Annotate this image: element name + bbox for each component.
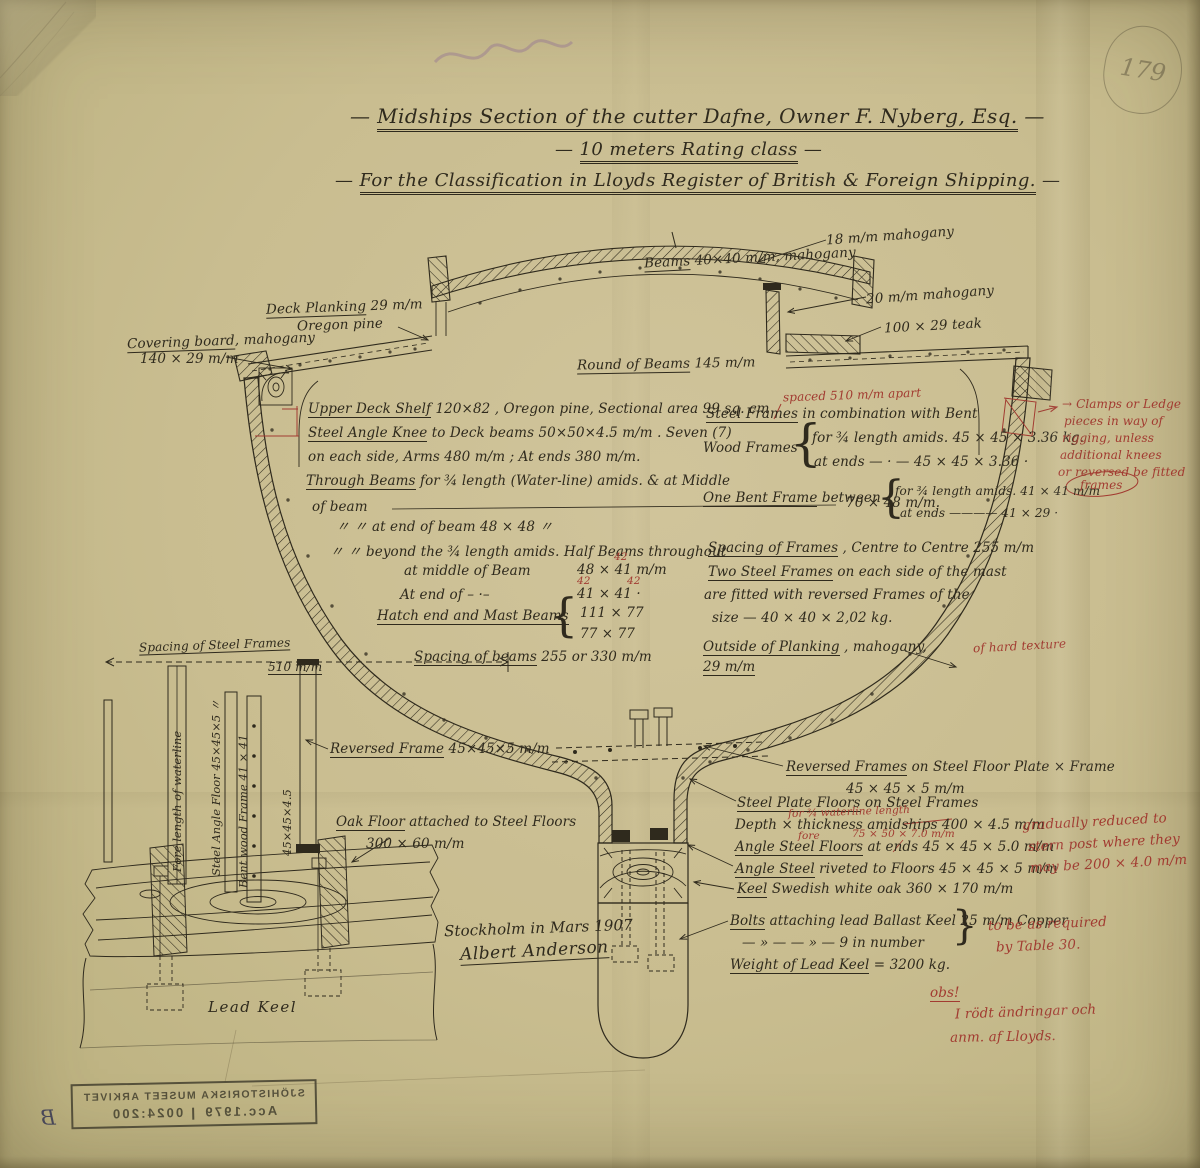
outside-planking-label: Outside of Planking , mahogany, xyxy=(703,639,927,655)
red-correction-42a: 42 xyxy=(614,551,628,564)
weight-lead-keel-head: Weight of Lead Keel xyxy=(730,957,869,974)
wood-frames-label: Wood Frames xyxy=(703,440,798,456)
drawing-sheet: — Midships Section of the cutter Dafne, … xyxy=(0,0,1200,1168)
red-clamps-note-line3: rigging, unless xyxy=(1062,431,1154,446)
bolts-number-line: — » — — » — 9 in number xyxy=(742,935,924,951)
through-beams-text: for ¾ length (Water-line) amids. & at Mi… xyxy=(416,473,731,489)
beyond-length-line: 〃 〃 beyond the ¾ length amids. Half Beam… xyxy=(330,544,726,560)
fore-length-waterline-note: Fore length of waterline xyxy=(170,731,184,872)
angle-steel-riveted-label: Angle Steel riveted to Floors 45 × 45 × … xyxy=(735,861,1058,877)
keel-head: Keel xyxy=(737,881,767,898)
title-dash: — xyxy=(350,104,370,128)
title-dash: — xyxy=(1024,104,1044,128)
one-bent-frame-head: One Bent Frame xyxy=(703,490,817,507)
two-steel-frames-text: on each side of the mast xyxy=(833,564,1007,580)
two-steel-frames-line2: are fitted with reversed Frames of the xyxy=(704,587,970,603)
covering-board-size: 140 × 29 m/m xyxy=(140,351,238,367)
spacing-steel-frames-value: 510 m/m xyxy=(268,660,322,675)
red-clamps-note-line2: pieces in way of xyxy=(1064,414,1163,429)
one-bent-line1: for ¾ length amids. 41 × 41 m/m xyxy=(895,484,1100,499)
weight-lead-keel-text: = 3200 kg. xyxy=(869,957,950,973)
spacing-of-beams-head: Spacing of beams xyxy=(414,649,537,666)
two-steel-frames-line3: size — 40 × 40 × 2,02 kg. xyxy=(712,610,893,626)
spacing-of-frames-head: Spacing of Frames xyxy=(708,540,838,557)
steel-frames-text: in combination with Bent xyxy=(798,406,977,422)
red-obs-text: obs! xyxy=(930,985,960,1002)
archive-stamp-box: SJÖHISTORISKA MUSEET ARKIVET Acc.1979002… xyxy=(70,1079,317,1129)
reversed-frames-floor-head: Reversed Frames xyxy=(786,759,907,776)
title-line1: Midships Section of the cutter Dafne, Ow… xyxy=(377,104,1017,132)
reversed-frame-text: 45×45×5 m/m xyxy=(444,741,550,757)
archive-stamp-divider xyxy=(192,1107,194,1119)
angle-size-vertical-label: 45×45×4.5 xyxy=(280,789,294,856)
at-end-of-label: At end of – ·– xyxy=(400,587,490,603)
angle-steel-riveted-text: riveted to Floors 45 × 45 × 5 m/m xyxy=(815,861,1058,877)
outside-planking-thickness: 29 m/m xyxy=(703,659,755,675)
spacing-of-frames-label: Spacing of Frames , Centre to Centre 255… xyxy=(708,540,1034,556)
spacing-of-beams-text: 255 or 330 m/m xyxy=(537,649,652,665)
one-bent-frame-label: One Bent Frame between xyxy=(703,490,881,506)
steel-frames-label: Steel Frames in combination with Bent xyxy=(706,406,978,422)
hatch-mast-head: Hatch end and Mast Beams xyxy=(377,608,569,625)
wood-frames-line2: at ends — · — 45 × 45 × 3.36 · xyxy=(814,454,1028,470)
through-beams-head: Through Beams xyxy=(306,473,416,490)
drawing-subtitle: — 10 meters Rating class — xyxy=(555,139,822,160)
oak-floor-text: attached to Steel Floors xyxy=(405,814,576,830)
bent-wood-frame-vertical-label: Bent wood Frame 41 × 41 xyxy=(236,734,250,888)
round-of-beams-head: Round of Beams xyxy=(577,356,690,375)
archive-stamp-acc-no: Acc.1979 xyxy=(203,1103,277,1120)
frame-detail xyxy=(104,652,508,956)
title-dash: — xyxy=(804,139,822,160)
red-correction-42b: 42 xyxy=(577,575,591,588)
spacing-steel-frames-value-text: 510 m/m xyxy=(268,660,322,675)
through-beams-label: Through Beams for ¾ length (Water-line) … xyxy=(306,473,730,489)
outside-planking-head: Outside of Planking xyxy=(703,639,840,656)
steel-angle-knee-label: Steel Angle Knee to Deck beams 50×50×4.5… xyxy=(308,425,732,441)
upper-deck-shelf-head: Upper Deck Shelf xyxy=(308,401,431,418)
red-clamps-note-frames: frames xyxy=(1080,478,1123,493)
at-end-value: 41 × 41 · xyxy=(577,586,641,602)
oak-floor-size: 300 × 60 m/m xyxy=(366,836,464,852)
one-bent-frame-text: between xyxy=(817,490,880,506)
hatch-mast-brace: { xyxy=(549,595,578,636)
hatch-mast-value2: 77 × 77 xyxy=(580,626,635,642)
spacing-of-beams-label: Spacing of beams 255 or 330 m/m xyxy=(414,649,652,665)
keel-text: Swedish white oak 360 × 170 m/m xyxy=(767,881,1013,897)
of-beam-label: of beam xyxy=(312,499,368,515)
title-dash: — xyxy=(1042,170,1060,191)
red-table-brace: } xyxy=(952,908,977,944)
archive-stamp-mark: B xyxy=(40,1106,56,1130)
red-obs-note: obs! xyxy=(930,985,960,1001)
archive-stamp-item-no: 0024:200 xyxy=(111,1105,184,1122)
oak-floor-label: Oak Floor attached to Steel Floors xyxy=(336,814,576,830)
red-clamps-note-line4: additional knees xyxy=(1060,448,1162,463)
red-table30-note-line2: by Table 30. xyxy=(996,937,1081,956)
hatch-mast-value1: 111 × 77 xyxy=(580,605,644,621)
angle-steel-riveted-head: Angle Steel xyxy=(735,861,815,878)
archive-stamp: SJÖHISTORISKA MUSEET ARKIVET Acc.1979002… xyxy=(40,1079,318,1130)
two-steel-frames-label: Two Steel Frames on each side of the mas… xyxy=(708,564,1007,580)
steel-frames-head: Steel Frames xyxy=(706,406,798,423)
deck-planking-text: 29 m/m xyxy=(366,296,423,314)
title-dash: — xyxy=(335,170,353,191)
ink-bleedthrough-mark xyxy=(435,41,572,62)
drawing-classification: — For the Classification in Lloyds Regis… xyxy=(335,170,1060,191)
red-correction-42c: 42 xyxy=(627,575,641,588)
reversed-frames-floor-text: on Steel Floor Plate × Frame xyxy=(907,759,1115,775)
reversed-frame-label: Reversed Frame 45×45×5 m/m xyxy=(330,741,550,757)
round-of-beams-label: Round of Beams 145 m/m xyxy=(577,354,756,374)
red-size-correction: 75 × 50 × 7.0 m/m xyxy=(852,828,955,841)
steel-angle-floor-vertical-label: Steel Angle Floor 45×45×5 〃 xyxy=(208,700,224,876)
steel-angle-knee-head: Steel Angle Knee xyxy=(308,425,427,442)
red-clamps-note-line1: → Clamps or Ledge xyxy=(1062,397,1181,412)
one-bent-line2: at ends ———— 41 × 29 · xyxy=(900,506,1058,521)
upper-deck-shelf-label: Upper Deck Shelf 120×82 , Oregon pine, S… xyxy=(308,401,770,417)
reversed-frames-floor-label: Reversed Frames on Steel Floor Plate × F… xyxy=(786,759,1115,775)
archive-stamp-accession: Acc.19790024:200 xyxy=(83,1102,306,1122)
covering-board-text: , mahogany xyxy=(235,330,316,349)
keel-label: Keel Swedish white oak 360 × 170 m/m xyxy=(737,881,1013,897)
oak-floor-head: Oak Floor xyxy=(336,814,405,831)
title-dash: — xyxy=(555,139,573,160)
two-steel-frames-head: Two Steel Frames xyxy=(708,564,833,581)
wood-frames-line1: for ¾ length amids. 45 × 45 × 3.36 kg. xyxy=(812,430,1084,446)
wood-floor-detail xyxy=(80,845,439,1048)
pencil-sheet-number-text: 179 xyxy=(1118,53,1168,88)
angle-steel-floors-label: Angle Steel Floors at ends 45 × 45 × 5.0… xyxy=(735,839,1054,855)
at-end-of-beam-line: 〃 〃 at end of beam 48 × 48 〃 xyxy=(336,519,553,535)
title-line2: 10 meters Rating class xyxy=(580,139,798,164)
at-middle-of-beam-label: at middle of Beam xyxy=(404,563,531,579)
red-fore-note: fore xyxy=(798,830,820,843)
angle-steel-floors-text: at ends 45 × 45 × 5.0 m/m xyxy=(863,839,1054,855)
weight-lead-keel-label: Weight of Lead Keel = 3200 kg. xyxy=(730,957,950,973)
drawing-title: — Midships Section of the cutter Dafne, … xyxy=(350,104,1045,128)
lead-keel-label: Lead Keel xyxy=(208,998,297,1016)
knee-arms-label: on each side, Arms 480 m/m ; At ends 380… xyxy=(308,449,641,465)
bolts-head: Bolts xyxy=(730,913,765,930)
outside-planking-text: , mahogany, xyxy=(840,639,927,655)
red-obs-note-line3: anm. af Lloyds. xyxy=(950,1028,1056,1046)
outside-planking-thickness-text: 29 m/m xyxy=(703,659,755,676)
reversed-frame-head: Reversed Frame xyxy=(330,741,444,758)
title-line3: For the Classification in Lloyds Registe… xyxy=(360,170,1036,195)
hatch-mast-beams-label: Hatch end and Mast Beams xyxy=(377,608,569,624)
beams-head: Beams xyxy=(644,253,691,272)
archive-stamp-line1: SJÖHISTORISKA MUSEET ARKIVET xyxy=(82,1087,305,1104)
steel-angle-knee-text: to Deck beams 50×50×4.5 m/m . Seven (7) xyxy=(427,425,731,441)
keel-structure xyxy=(598,828,688,1058)
round-of-beams-text: 145 m/m xyxy=(690,354,756,371)
spacing-of-frames-text: , Centre to Centre 255 m/m xyxy=(838,540,1034,556)
